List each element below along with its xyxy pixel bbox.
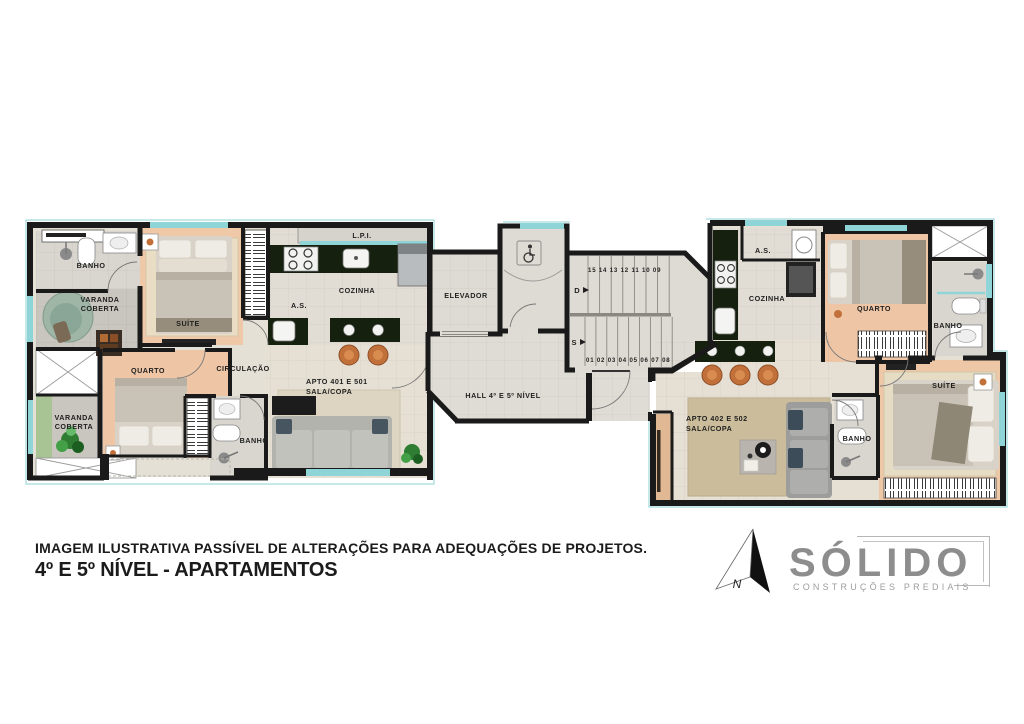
suite1-bed [142,234,238,345]
quarto2-wardrobe [858,331,926,357]
page-title: 4º E 5º NÍVEL - APARTAMENTOS [35,559,337,582]
banho1-label: BANHO [77,261,106,270]
shaft-box [932,226,988,258]
as2-label: A.S. [755,246,771,255]
apartment-402: A.S. COZINHA QUARTO BANHO APTO 402 E 502… [653,220,1005,503]
sala2-furniture [688,398,832,498]
suite2-wardrobe [884,478,996,498]
cozinha2-label: COZINHA [749,294,785,303]
apto402-label-1: APTO 402 E 502 [686,414,748,423]
stair-landing-rail [570,313,671,317]
north-arrow-icon: N [716,529,770,593]
floor-plan: BANHO VARANDA COBERTA SUÍTE L.P.I. COZIN… [0,0,1024,724]
varanda2-label-1: VARANDA [55,413,94,422]
quarto2-label: QUARTO [857,304,891,313]
apartment-401: BANHO VARANDA COBERTA SUÍTE L.P.I. COZIN… [27,222,430,480]
sala1-furniture [272,390,423,472]
quarto1-wardrobe [187,398,208,456]
elevador-label: ELEVADOR [444,291,488,300]
quarto1-bed [106,378,187,460]
disclaimer-text: IMAGEM ILUSTRATIVA PASSÍVEL DE ALTERAÇÕE… [35,540,647,556]
banho2-label: BANHO [240,436,269,445]
suite1-label: SUÍTE [176,319,200,328]
logo-tagline: CONSTRUÇÕES PREDIAIS [793,582,972,592]
apt2-entry [655,414,672,500]
as1-label: A.S. [291,301,307,310]
hall-label: HALL 4º E 5º NÍVEL [465,391,540,400]
pcd-window [520,223,564,229]
stairs-sobe-label: S [571,338,576,347]
kitchen-sink-icon [715,308,735,334]
suite2-tv [886,363,916,370]
toilet-icon [952,298,980,314]
lpi-label: L.P.I. [352,231,371,240]
cozinha1-label: COZINHA [339,286,375,295]
pcd-floor [502,228,565,331]
stairs-desce-label: D [574,286,580,295]
suite1-closet [245,230,267,316]
as1-tank [268,318,308,345]
suite2-label: SUÍTE [932,381,956,390]
logo-brand: SÓLIDO [789,541,972,586]
quarto1-label: QUARTO [131,366,165,375]
stairs-up-numbers: 15 14 13 12 11 10 09 [588,267,661,274]
sala1-tv [272,396,316,415]
apto401-label-1: APTO 401 E 501 [306,377,368,386]
floorplan-page: BANHO VARANDA COBERTA SUÍTE L.P.I. COZIN… [0,0,1024,724]
banho3-label: BANHO [934,321,963,330]
apto402-label-2: SALA/COPA [686,424,732,433]
varanda2-grass [36,395,52,458]
apto401-label-2: SALA/COPA [306,387,352,396]
varanda2-label-2: COBERTA [55,422,94,431]
pcd-doorway [508,327,538,335]
circulacao-label: CIRCULAÇÃO [216,364,269,373]
varanda1-label-1: VARANDA [81,295,120,304]
banho4-label: BANHO [843,434,872,443]
north-label: N [733,577,742,591]
varanda1-label-2: COBERTA [81,304,120,313]
suite2-bed [884,363,999,476]
